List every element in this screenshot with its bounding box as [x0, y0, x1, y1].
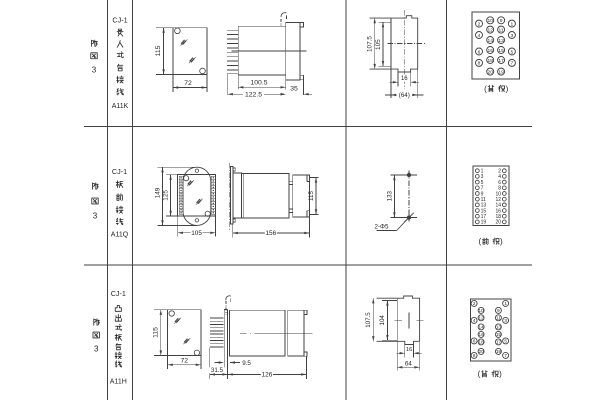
- svg-text:6: 6: [473, 339, 476, 344]
- svg-text:6: 6: [478, 49, 481, 55]
- svg-text:5: 5: [511, 49, 514, 55]
- svg-text:31.5: 31.5: [211, 367, 224, 374]
- svg-text:133: 133: [386, 190, 393, 201]
- svg-text:115: 115: [155, 45, 162, 56]
- svg-text:15: 15: [496, 332, 502, 337]
- svg-text:4: 4: [473, 318, 476, 323]
- svg-text:8: 8: [478, 61, 481, 67]
- svg-text:125: 125: [162, 190, 169, 201]
- svg-text:1: 1: [511, 21, 514, 27]
- svg-text:19: 19: [498, 69, 504, 75]
- svg-text:8: 8: [473, 353, 476, 358]
- svg-text:A11Q: A11Q: [111, 232, 129, 239]
- svg-text:CJ-1: CJ-1: [111, 289, 126, 298]
- svg-text:72: 72: [181, 358, 189, 365]
- svg-text:126: 126: [261, 372, 272, 379]
- svg-text:3: 3: [511, 33, 514, 39]
- svg-text:105: 105: [375, 39, 382, 50]
- svg-text:CJ-1: CJ-1: [112, 167, 127, 176]
- svg-text:2-Φ5: 2-Φ5: [375, 224, 389, 231]
- svg-text:35: 35: [290, 86, 298, 93]
- svg-text:(: (: [484, 84, 487, 93]
- svg-text:3: 3: [504, 318, 507, 323]
- svg-text:A11K: A11K: [112, 103, 129, 110]
- svg-text:17: 17: [498, 58, 504, 64]
- svg-text:9: 9: [500, 18, 503, 24]
- svg-text:11: 11: [496, 315, 501, 320]
- svg-text:16: 16: [401, 76, 408, 82]
- svg-text:107.5: 107.5: [366, 36, 373, 52]
- svg-text:(: (: [478, 237, 481, 246]
- svg-text:72: 72: [184, 80, 192, 87]
- svg-text:9: 9: [497, 308, 500, 313]
- svg-text:1: 1: [504, 301, 507, 306]
- svg-text:19: 19: [496, 349, 502, 354]
- svg-text:104: 104: [379, 315, 386, 326]
- svg-text:4: 4: [478, 33, 481, 39]
- svg-text:14: 14: [487, 38, 493, 44]
- svg-text:15: 15: [498, 48, 504, 54]
- svg-text:122.5: 122.5: [245, 91, 262, 98]
- svg-text:11: 11: [499, 27, 504, 33]
- svg-text:18: 18: [487, 58, 493, 64]
- svg-text:20: 20: [487, 69, 493, 75]
- svg-text:(64): (64): [399, 92, 410, 99]
- svg-text:3: 3: [92, 65, 97, 74]
- svg-text:CJ-1: CJ-1: [112, 16, 127, 25]
- svg-text:156: 156: [265, 230, 276, 237]
- svg-text:64: 64: [405, 360, 412, 367]
- svg-text:2: 2: [473, 301, 476, 306]
- svg-text:7: 7: [511, 61, 514, 67]
- svg-text:(: (: [478, 370, 481, 379]
- svg-text:7: 7: [504, 353, 507, 358]
- svg-text:18: 18: [479, 340, 485, 345]
- svg-text:17: 17: [496, 340, 502, 345]
- svg-text:): ): [499, 370, 502, 379]
- svg-text:9.5: 9.5: [242, 360, 251, 367]
- svg-text:3: 3: [93, 212, 98, 221]
- svg-text:A11H: A11H: [110, 378, 127, 385]
- svg-text:100.5: 100.5: [250, 79, 267, 86]
- svg-text:10: 10: [479, 308, 485, 313]
- svg-text:3: 3: [94, 345, 99, 354]
- svg-text:13: 13: [496, 325, 502, 330]
- svg-text:16: 16: [487, 48, 493, 54]
- svg-text:): ): [506, 84, 509, 93]
- svg-text:5: 5: [504, 339, 507, 344]
- svg-text:105: 105: [191, 230, 202, 237]
- svg-text:): ): [500, 237, 503, 246]
- svg-text:12: 12: [487, 27, 493, 33]
- svg-text:20: 20: [495, 220, 501, 226]
- svg-text:12: 12: [479, 315, 485, 320]
- svg-text:10: 10: [487, 18, 493, 24]
- svg-text:149: 149: [154, 187, 161, 198]
- svg-text:13: 13: [498, 38, 504, 44]
- svg-text:14: 14: [479, 325, 485, 330]
- svg-text:115: 115: [308, 191, 315, 201]
- svg-text:115: 115: [152, 327, 159, 338]
- svg-text:2: 2: [478, 21, 481, 27]
- svg-text:16: 16: [479, 332, 485, 337]
- svg-text:20: 20: [479, 349, 485, 354]
- svg-text:16: 16: [406, 347, 412, 353]
- svg-text:19: 19: [481, 220, 487, 226]
- svg-text:107.5: 107.5: [365, 312, 372, 328]
